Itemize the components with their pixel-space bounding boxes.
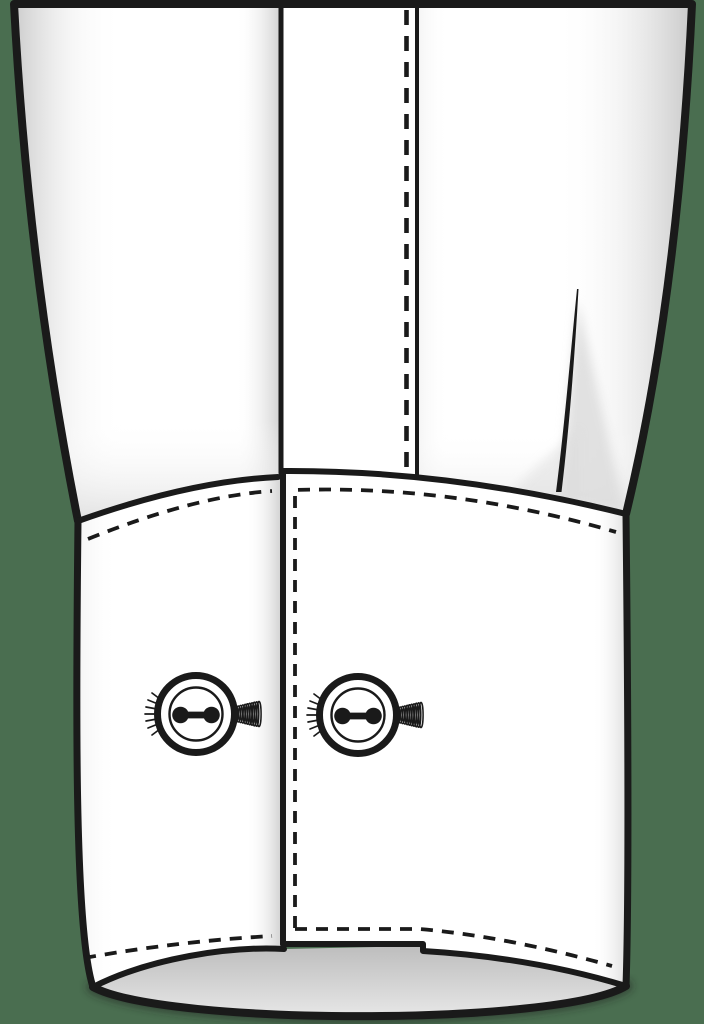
sleeve-body: [8, 0, 696, 540]
cuff-left-piece: [76, 470, 286, 995]
shirt-cuff-illustration: [0, 0, 704, 1024]
cuff-right-side-edge: [626, 514, 628, 986]
